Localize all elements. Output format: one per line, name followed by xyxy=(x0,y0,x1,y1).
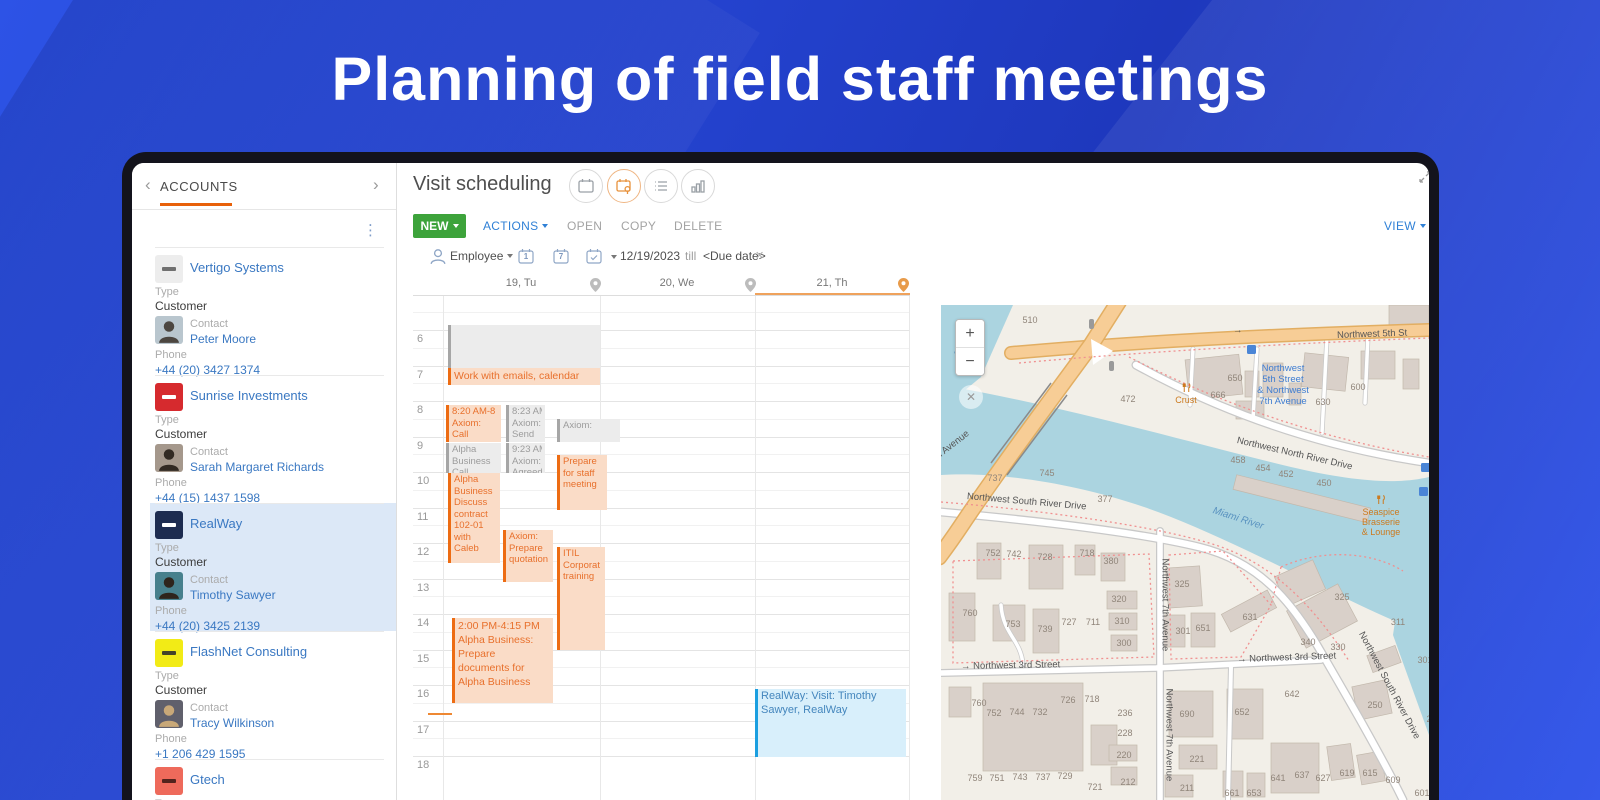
day-header-label[interactable]: 19, Tu xyxy=(464,277,578,289)
event-realway-visit[interactable]: RealWay: Visit: TimothySawyer, RealWay xyxy=(755,689,906,757)
employee-filter[interactable]: Employee xyxy=(450,249,513,263)
visits-view-button[interactable] xyxy=(607,169,641,203)
contact-avatar xyxy=(155,316,183,344)
contact-name-link[interactable]: Timothy Sawyer xyxy=(190,588,276,602)
card-divider xyxy=(155,759,384,760)
event-axiom-agreed[interactable]: 9:23 AM-9Axiom:Agreed xyxy=(506,443,545,473)
hour-label: 11 xyxy=(417,511,428,523)
list-icon xyxy=(652,177,670,195)
account-logo xyxy=(155,639,183,667)
map-close-icon[interactable]: ✕ xyxy=(959,385,983,409)
calendar-pin-icon xyxy=(615,177,633,195)
card-divider xyxy=(155,503,384,504)
caret-down-icon xyxy=(542,224,548,228)
type-label: Type xyxy=(155,542,179,554)
hour-label: 18 xyxy=(417,759,429,771)
day-header: 19, Tu 20, We 21, Th xyxy=(413,274,910,295)
analytics-view-button[interactable] xyxy=(681,169,715,203)
caret-down-icon xyxy=(1420,224,1426,228)
type-label: Type xyxy=(155,414,179,426)
copy-button[interactable]: COPY xyxy=(621,219,656,233)
account-card[interactable]: Vertigo Systems Type Customer Contact Pe… xyxy=(132,247,396,375)
contact-name-link[interactable]: Peter Moore xyxy=(190,332,256,346)
location-pin-icon[interactable] xyxy=(745,278,756,292)
app-surface: ‹ ACCOUNTS › ⋮ Vertigo Systems Type Cust… xyxy=(132,163,1429,800)
current-time-tick xyxy=(428,713,452,715)
accounts-header: ‹ ACCOUNTS › xyxy=(132,163,396,210)
scheduler-title: Visit scheduling xyxy=(413,173,552,196)
contact-avatar xyxy=(155,700,183,728)
calendar-view-button[interactable] xyxy=(569,169,603,203)
fullscreen-icon[interactable] xyxy=(1418,170,1429,184)
phone-label: Phone xyxy=(155,349,187,361)
clear-filter-icon[interactable]: ✕ xyxy=(755,249,764,262)
hour-label: 7 xyxy=(417,369,423,381)
account-card[interactable]: Gtech Type Contact Phone xyxy=(132,759,396,800)
contact-label: Contact xyxy=(190,318,228,330)
hour-label: 13 xyxy=(417,582,429,594)
account-name-link[interactable]: Gtech xyxy=(190,772,225,787)
hour-label: 10 xyxy=(417,475,429,487)
accounts-active-underline xyxy=(160,203,232,206)
card-divider xyxy=(155,375,384,376)
zoom-in-button[interactable]: + xyxy=(956,320,984,347)
hour-label: 12 xyxy=(417,546,429,558)
list-view-button[interactable] xyxy=(644,169,678,203)
account-card[interactable]: FlashNet Consulting Type Customer Contac… xyxy=(132,631,396,759)
hour-label: 15 xyxy=(417,653,429,665)
hour-label: 14 xyxy=(417,617,429,629)
account-name-link[interactable]: Sunrise Investments xyxy=(190,388,308,403)
event-axiom-call[interactable]: 8:20 AM-8Axiom:Call xyxy=(446,405,501,442)
actions-button[interactable]: ACTIONS xyxy=(483,219,548,233)
caret-down-icon xyxy=(453,224,459,228)
view-label: VIEW xyxy=(1384,219,1416,233)
account-logo xyxy=(155,383,183,411)
page-background: Planning of field staff meetings ‹ ACCOU… xyxy=(0,0,1600,800)
event-alpha-prepare-documents[interactable]: 2:00 PM-4:15 PMAlpha Business:Preparedoc… xyxy=(452,618,553,703)
zoom-out-button[interactable]: − xyxy=(956,348,984,375)
day-header-label[interactable]: 20, We xyxy=(620,277,734,289)
view-button[interactable]: VIEW xyxy=(1384,219,1426,233)
event-work-emails[interactable]: Work with emails, calendar xyxy=(448,368,600,385)
account-logo xyxy=(155,511,183,539)
hour-label: 16 xyxy=(417,688,429,700)
new-label: NEW xyxy=(421,219,449,233)
type-value: Customer xyxy=(155,427,207,441)
hour-label: 17 xyxy=(417,724,429,736)
contact-avatar xyxy=(155,572,183,600)
event-prepare-staff-meeting[interactable]: Preparefor staffmeeting xyxy=(557,455,607,510)
day-header-label[interactable]: 21, Th xyxy=(775,277,889,289)
type-label: Type xyxy=(155,286,179,298)
hour-label: 9 xyxy=(417,440,423,452)
phone-label: Phone xyxy=(155,733,187,745)
accounts-list: Vertigo Systems Type Customer Contact Pe… xyxy=(132,247,396,800)
card-divider xyxy=(155,247,384,248)
hour-label: 8 xyxy=(417,404,423,416)
contact-label: Contact xyxy=(190,702,228,714)
period-view-icon[interactable] xyxy=(585,247,603,265)
account-name-link[interactable]: RealWay xyxy=(190,516,242,531)
contact-name-link[interactable]: Tracy Wilkinson xyxy=(190,716,274,730)
event-alpha-business-call[interactable]: AlphaBusinessCall xyxy=(446,443,501,473)
expand-chevron-icon[interactable]: › xyxy=(373,175,379,195)
contact-label: Contact xyxy=(190,446,228,458)
date-from-value[interactable]: 12/19/2023 xyxy=(620,249,680,263)
type-value: Customer xyxy=(155,683,207,697)
account-name-link[interactable]: FlashNet Consulting xyxy=(190,644,307,659)
week-view-icon[interactable]: 7 xyxy=(552,247,570,265)
event-axiom[interactable]: Axiom: xyxy=(557,419,620,442)
caret-down-icon[interactable] xyxy=(611,255,617,259)
day-view-icon[interactable]: 1 xyxy=(517,247,535,265)
new-button[interactable]: NEW xyxy=(413,214,466,238)
accounts-title: ACCOUNTS xyxy=(160,179,238,194)
account-card[interactable]: RealWay Type Customer Contact Timothy Sa… xyxy=(132,503,396,631)
employee-label: Employee xyxy=(450,249,503,263)
calendar-icon xyxy=(577,177,595,195)
type-value: Customer xyxy=(155,555,207,569)
delete-button[interactable]: DELETE xyxy=(674,219,722,233)
back-chevron-icon[interactable]: ‹ xyxy=(145,175,151,195)
type-value: Customer xyxy=(155,299,207,313)
caret-down-icon xyxy=(507,254,513,258)
actions-label: ACTIONS xyxy=(483,219,538,233)
event-axiom-send[interactable]: 8:23 AM-8Axiom:Send xyxy=(506,405,545,442)
contact-label: Contact xyxy=(190,574,228,586)
phone-label: Phone xyxy=(155,477,187,489)
account-card[interactable]: Sunrise Investments Type Customer Contac… xyxy=(132,375,396,503)
phone-label: Phone xyxy=(155,605,187,617)
employee-icon xyxy=(429,247,447,265)
account-logo xyxy=(155,767,183,795)
event-busy-block[interactable] xyxy=(448,325,600,368)
account-logo xyxy=(155,255,183,283)
page-title: Planning of field staff meetings xyxy=(0,44,1600,114)
bar-chart-icon xyxy=(689,177,707,195)
app-window: ‹ ACCOUNTS › ⋮ Vertigo Systems Type Cust… xyxy=(122,152,1439,800)
till-label: till xyxy=(685,249,696,263)
contact-name-link[interactable]: Sarah Margaret Richards xyxy=(190,460,324,474)
type-label: Type xyxy=(155,670,179,682)
contact-avatar xyxy=(155,444,183,472)
event-itil-corporate-training[interactable]: ITILCorporattraining xyxy=(557,547,605,650)
hour-label: 6 xyxy=(417,333,423,345)
open-button[interactable]: OPEN xyxy=(567,219,602,233)
account-name-link[interactable]: Vertigo Systems xyxy=(190,260,284,275)
map-panel[interactable]: 5104726666506306007377453774584544524507… xyxy=(941,305,1429,800)
location-pin-icon[interactable] xyxy=(590,278,601,292)
card-divider xyxy=(155,631,384,632)
map-zoom-control: + − xyxy=(955,319,985,376)
list-menu-icon[interactable]: ⋮ xyxy=(363,221,378,239)
event-axiom-prepare-quotation[interactable]: Axiom:Preparequotation xyxy=(503,530,553,582)
event-alpha-discuss-contract[interactable]: AlphaBusinessDiscusscontract102-01withCa… xyxy=(448,473,500,563)
location-pin-icon[interactable] xyxy=(898,278,909,292)
accounts-panel: ‹ ACCOUNTS › ⋮ Vertigo Systems Type Cust… xyxy=(132,163,397,800)
map-canvas xyxy=(941,305,1429,800)
